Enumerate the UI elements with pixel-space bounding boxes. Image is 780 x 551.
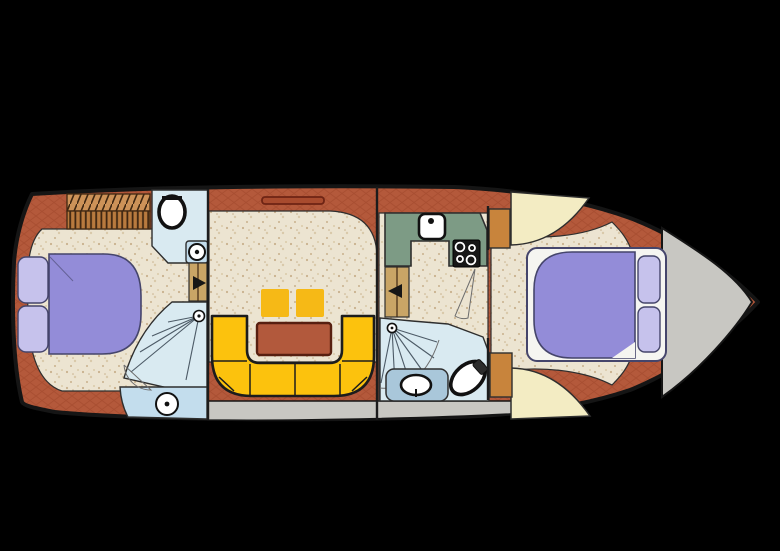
- aft-pillow-bottom: [18, 306, 48, 352]
- bow-pillow-bottom: [638, 307, 660, 352]
- bow-cabinet-door-top: [489, 209, 510, 248]
- bow-double-bed: [527, 248, 666, 361]
- boat-floor-plan-canvas: [0, 0, 780, 551]
- aft-door-lower: [189, 263, 207, 301]
- galley-sink-icon: [419, 214, 445, 239]
- deck-support-icon: [156, 393, 178, 415]
- stove-icon: [453, 240, 480, 267]
- aft-basin-icon: [186, 241, 208, 263]
- bathroom-basin: [386, 369, 448, 401]
- bow-cabinet-door-bottom: [490, 353, 512, 397]
- toilet-icon: [159, 196, 185, 228]
- vent-slot: [262, 197, 324, 204]
- stool-right: [296, 289, 324, 317]
- galley-door: [385, 267, 409, 317]
- aft-pillow-top: [18, 257, 48, 303]
- boat-deck-plan: [0, 0, 780, 551]
- louvered-steps: [67, 194, 150, 229]
- bow-pillow-top: [638, 256, 660, 303]
- stool-left: [261, 289, 289, 317]
- dinette-table: [257, 323, 331, 355]
